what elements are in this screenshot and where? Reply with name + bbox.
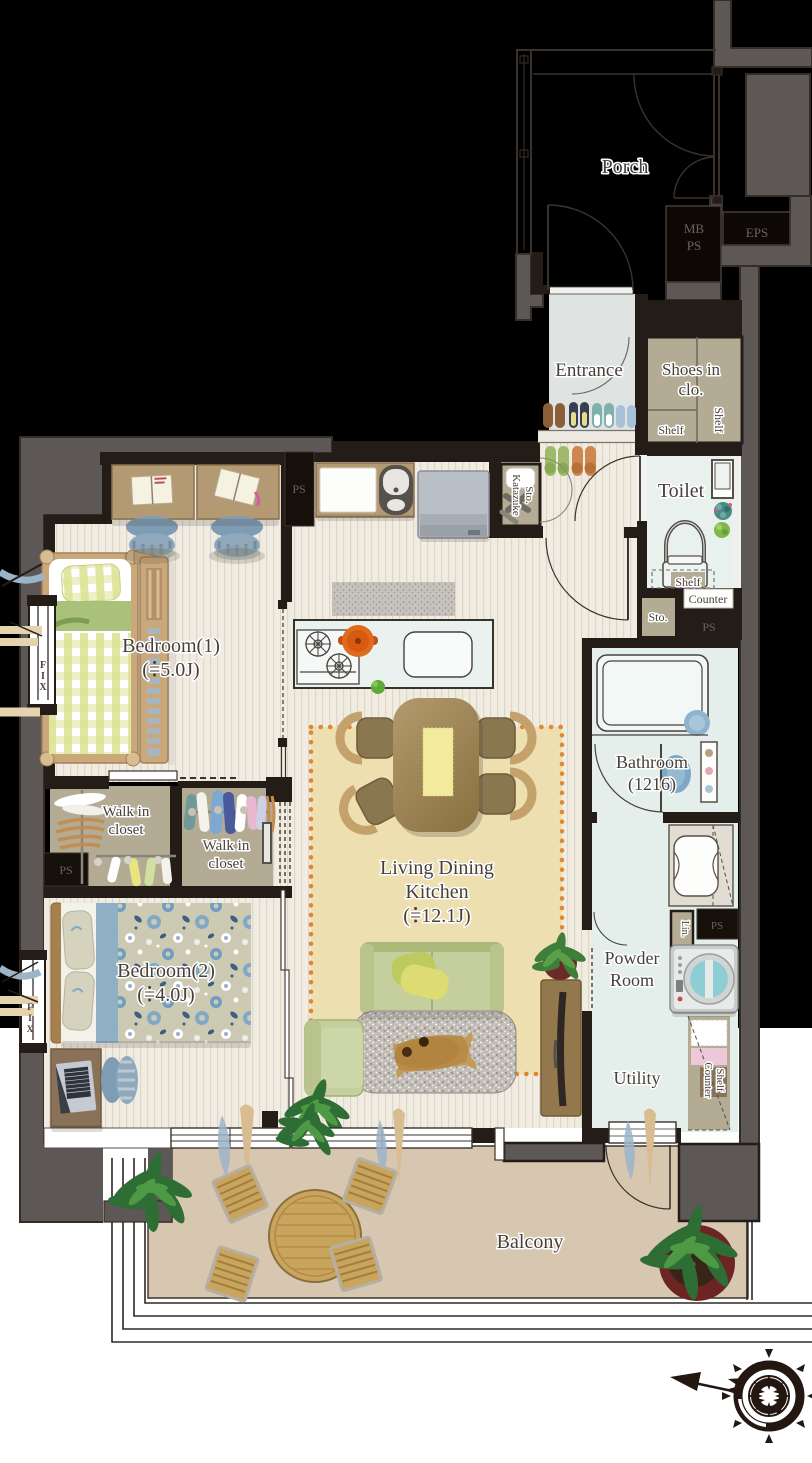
svg-text:Shelf: Shelf xyxy=(714,1068,726,1092)
svg-text:Bathroom: Bathroom xyxy=(616,752,688,772)
svg-text:clo.: clo. xyxy=(678,380,703,399)
svg-text:I: I xyxy=(41,671,45,682)
svg-text:X: X xyxy=(39,682,47,693)
svg-text:(=12.1J): (=12.1J) xyxy=(403,905,470,927)
svg-text:Lin.: Lin. xyxy=(679,921,690,937)
svg-text:Porch: Porch xyxy=(602,156,649,178)
svg-text:PS: PS xyxy=(59,863,72,877)
svg-text:Shoes in: Shoes in xyxy=(662,360,721,379)
svg-text:Counter: Counter xyxy=(702,1062,714,1098)
svg-text:Walk in: Walk in xyxy=(203,838,250,854)
svg-text:Katazuke: Katazuke xyxy=(510,474,522,516)
svg-text:Walk in: Walk in xyxy=(103,804,150,820)
svg-text:PS: PS xyxy=(292,482,305,496)
svg-text:Toilet: Toilet xyxy=(658,480,705,502)
svg-text:Living Dining: Living Dining xyxy=(380,857,494,879)
svg-text:Balcony: Balcony xyxy=(497,1231,564,1253)
svg-text:PS: PS xyxy=(711,920,723,932)
svg-text:Powder: Powder xyxy=(605,948,660,968)
svg-text:Bedroom(1): Bedroom(1) xyxy=(122,635,220,657)
svg-text:PS: PS xyxy=(687,238,701,253)
svg-text:F: F xyxy=(40,660,46,671)
svg-text:closet: closet xyxy=(209,856,245,872)
svg-text:X: X xyxy=(27,1024,34,1034)
svg-text:F: F xyxy=(27,1002,33,1012)
svg-text:Sto.: Sto. xyxy=(648,610,667,624)
svg-text:(1216): (1216) xyxy=(628,774,676,795)
svg-text:MB: MB xyxy=(684,221,705,236)
svg-text:Room: Room xyxy=(610,970,654,990)
svg-text:closet: closet xyxy=(109,822,145,838)
svg-text:PS: PS xyxy=(702,620,715,634)
svg-text:Kitchen: Kitchen xyxy=(405,881,468,903)
svg-text:Shelf: Shelf xyxy=(712,407,726,432)
svg-text:Sto.: Sto. xyxy=(523,486,535,504)
svg-text:Utility: Utility xyxy=(613,1068,660,1088)
svg-text:Counter: Counter xyxy=(689,592,728,606)
svg-text:Entrance: Entrance xyxy=(555,360,623,381)
svg-text:(=5.0J): (=5.0J) xyxy=(142,659,199,681)
svg-text:I: I xyxy=(28,1013,32,1023)
svg-text:(=4.0J): (=4.0J) xyxy=(137,984,194,1006)
svg-text:Shelf: Shelf xyxy=(658,423,683,437)
svg-text:Bedroom(2): Bedroom(2) xyxy=(117,960,215,982)
svg-text:Shelf: Shelf xyxy=(675,575,700,589)
svg-text:EPS: EPS xyxy=(746,225,768,240)
